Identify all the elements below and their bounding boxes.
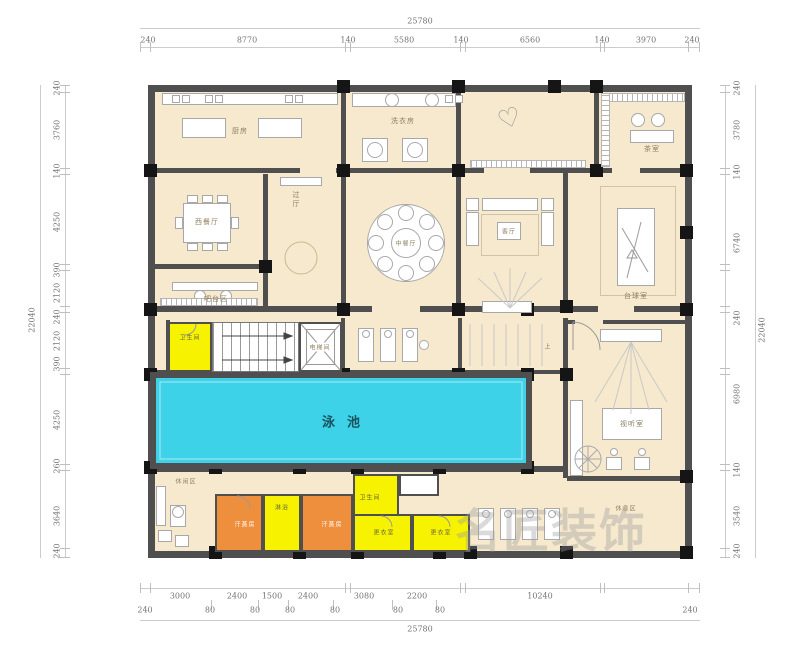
column [259, 260, 272, 273]
room-label-elevator: 电梯间 [308, 343, 331, 352]
furniture [156, 486, 166, 526]
furniture [466, 198, 479, 211]
dimension-tick [720, 557, 730, 558]
furniture [187, 243, 198, 251]
column [680, 303, 693, 316]
column [560, 300, 573, 313]
dimension-line [140, 620, 700, 621]
column [560, 546, 573, 559]
dimension-tick [60, 85, 70, 86]
door-opening [484, 168, 530, 173]
door-opening [598, 306, 634, 312]
dimension-label: 5580 [394, 36, 414, 45]
dimension-label: 2120 [53, 331, 62, 351]
column [680, 164, 693, 177]
dimension-label: 240 [53, 309, 62, 324]
furniture-circle [419, 214, 435, 230]
wall [567, 476, 687, 481]
dimension-label: 240 [137, 606, 152, 615]
dimension-tick [688, 583, 689, 593]
dimension-tick [465, 583, 466, 593]
window-band [601, 93, 685, 102]
furniture [175, 217, 183, 229]
furniture [172, 282, 258, 291]
dimension-tick [60, 264, 70, 265]
dimension-label: 6560 [520, 36, 540, 45]
dimension-tick [60, 168, 70, 169]
cabinet-square [215, 95, 223, 103]
column [548, 80, 561, 93]
dimension-label: 140 [53, 163, 62, 178]
dimension-line [725, 85, 726, 558]
furniture-circle [504, 510, 512, 518]
dimension-label: 25780 [407, 17, 432, 26]
cabinet-square [455, 95, 463, 103]
furniture-circle [377, 256, 393, 272]
dimension-tick [60, 270, 70, 271]
dimension-tick [60, 557, 70, 558]
dimension-tick [460, 583, 461, 593]
dimension-tick [350, 583, 351, 593]
furniture-circle [398, 265, 414, 281]
room-label-laundry: 洗衣房 [391, 116, 415, 126]
furniture-circle [482, 510, 490, 518]
furniture [482, 198, 538, 211]
dimension-label: 140 [340, 36, 355, 45]
furniture-circle [419, 340, 429, 350]
dimension-tick [345, 583, 346, 593]
furniture [217, 243, 228, 251]
column [452, 80, 465, 93]
dimension-label: 6740 [733, 233, 742, 253]
wall [341, 91, 346, 308]
dimension-label: 240 [53, 80, 62, 95]
room-label-sauna-right: 汗蒸房 [321, 520, 342, 529]
room-label-changing-2: 更衣室 [430, 528, 451, 537]
furniture [280, 177, 322, 186]
dimension-line [65, 85, 66, 558]
column [680, 546, 693, 559]
dimension-label: 4250 [53, 212, 62, 232]
room-label-billiards: 台球室 [624, 291, 648, 301]
dimension-label: 10240 [527, 592, 552, 601]
wall [563, 318, 568, 478]
wall [458, 318, 462, 374]
furniture [158, 530, 172, 542]
room-label-tea-room: 茶室 [644, 144, 660, 154]
dimension-label: 1500 [262, 592, 282, 601]
dimension-label: 80 [435, 606, 445, 615]
room-label-wc-left: 卫生间 [179, 333, 200, 342]
cabinet-square [182, 95, 190, 103]
door-opening [372, 306, 420, 312]
furniture [217, 195, 228, 203]
room-label-shower: 淋浴 [275, 503, 289, 512]
column [680, 470, 693, 483]
dimension-label: 3640 [53, 506, 62, 526]
wall [148, 551, 692, 558]
column [337, 303, 350, 316]
sink-nook [399, 474, 439, 496]
dimension-tick [60, 92, 70, 93]
dimension-tick [60, 174, 70, 175]
dimension-label: 240 [733, 80, 742, 95]
furniture-circle [362, 330, 370, 338]
furniture-circle [631, 113, 645, 127]
dimension-label: 4250 [53, 410, 62, 430]
dimension-label: 140 [733, 462, 742, 477]
dimension-line [140, 28, 700, 29]
dimension-label: 390 [53, 356, 62, 371]
cabinet-square [295, 95, 303, 103]
dimension-tick [60, 464, 70, 465]
dimension-tick [60, 306, 70, 307]
wall [594, 91, 599, 170]
door-opening [575, 320, 603, 324]
furniture-circle [398, 205, 414, 221]
furniture-circle [377, 214, 393, 230]
door-opening [612, 168, 640, 173]
stair-up-label: 上 [544, 342, 551, 351]
room-label-sauna-left: 汗蒸房 [234, 520, 255, 529]
dimension-label: 80 [250, 606, 260, 615]
dimension-tick [720, 92, 730, 93]
furniture-circle [384, 330, 392, 338]
room-label-west-dining: 西餐厅 [195, 217, 219, 227]
dimension-tick [720, 464, 730, 465]
dimension-tick [720, 264, 730, 265]
column [144, 303, 157, 316]
dimension-line [40, 85, 41, 558]
furniture-circle [638, 448, 646, 456]
dimension-tick [720, 168, 730, 169]
dimension-label: 6980 [733, 384, 742, 404]
dimension-label: 140 [594, 36, 609, 45]
dimension-tick [600, 583, 601, 593]
furniture [570, 400, 583, 476]
dimension-label: 22040 [28, 307, 37, 332]
dimension-label: 80 [330, 606, 340, 615]
furniture [630, 130, 674, 143]
furniture [466, 212, 479, 246]
dimension-line [140, 47, 700, 48]
dimension-tick [720, 270, 730, 271]
room-label-chinese-dining: 中餐厅 [395, 239, 416, 248]
furniture-circle [419, 256, 435, 272]
dimension-tick [140, 583, 141, 593]
dimension-tick [720, 374, 730, 375]
furniture-circle [407, 142, 423, 158]
dimension-label: 140 [453, 36, 468, 45]
furniture [634, 457, 650, 470]
furniture [541, 212, 554, 246]
column [144, 164, 157, 177]
cabinet-square [445, 95, 453, 103]
room-label-bar-area: 吧台区 [204, 294, 228, 304]
dimension-tick [720, 312, 730, 313]
dimension-tick [60, 312, 70, 313]
wall [263, 174, 268, 308]
room-label-living: 客厅 [502, 227, 516, 236]
furniture [541, 198, 554, 211]
dimension-label: 3000 [170, 592, 190, 601]
column [590, 80, 603, 93]
furniture-circle [526, 510, 534, 518]
cabinet-square [205, 95, 213, 103]
dimension-label: 2120 [53, 283, 62, 303]
column [560, 368, 573, 381]
stair-main [212, 322, 299, 372]
door-opening [300, 168, 336, 173]
furniture [606, 457, 622, 470]
dimension-label: 2200 [407, 592, 427, 601]
dimension-label: 240 [140, 36, 155, 45]
room-wc-left [168, 322, 212, 372]
wall [148, 85, 692, 92]
room-label-lounge: 休闲区 [175, 477, 196, 486]
dimension-label: 3540 [733, 506, 742, 526]
dimension-line [755, 85, 756, 558]
dimension-tick [720, 306, 730, 307]
dimension-tick [720, 174, 730, 175]
window-band [601, 93, 610, 167]
column [680, 226, 693, 239]
dimension-tick [699, 583, 700, 593]
dimension-label: 80 [285, 606, 295, 615]
furniture-circle [428, 235, 444, 251]
room-label-kitchen: 厨房 [232, 126, 248, 136]
dimension-label: 80 [205, 606, 215, 615]
wall [154, 264, 265, 269]
dimension-label: 240 [733, 310, 742, 325]
dimension-label: 240 [682, 606, 697, 615]
dimension-label: 140 [733, 164, 742, 179]
dimension-tick [60, 470, 70, 471]
dimension-label: 2400 [298, 592, 318, 601]
dimension-label: 25780 [407, 625, 432, 634]
furniture-circle [172, 506, 184, 518]
dimension-label: 3080 [354, 592, 374, 601]
dimension-tick [60, 368, 70, 369]
column [337, 164, 350, 177]
furniture-circle [610, 448, 618, 456]
dimension-label: 3970 [636, 36, 656, 45]
dimension-label: 80 [393, 606, 403, 615]
furniture [175, 535, 189, 547]
dimension-label: 3760 [53, 120, 62, 140]
room-label-av-room: 视听室 [620, 419, 644, 429]
dimension-label: 8770 [237, 36, 257, 45]
cabinet-square [285, 95, 293, 103]
wall [563, 170, 568, 308]
wall [148, 85, 155, 558]
furniture [231, 217, 239, 229]
cabinet-square [172, 95, 180, 103]
dimension-tick [720, 368, 730, 369]
floor-plan-canvas: ♡ 厨房 洗衣房 茶室 西餐厅 吧台区 过厅 中餐厅 客厅 台球室 电梯间 卫生… [0, 0, 800, 666]
furniture [352, 93, 456, 107]
dimension-tick [604, 583, 605, 593]
furniture [187, 195, 198, 203]
furniture [600, 329, 662, 342]
rug-outline [600, 186, 676, 296]
furniture-circle [368, 235, 384, 251]
column [452, 303, 465, 316]
wall [456, 91, 461, 308]
furniture-circle [425, 93, 439, 107]
room-label-changing-1: 更衣室 [373, 528, 394, 537]
furniture [182, 118, 226, 138]
dimension-line [140, 588, 700, 589]
dimension-tick [60, 374, 70, 375]
dimension-label: 390 [53, 262, 62, 277]
furniture-circle [367, 142, 383, 158]
room-label-pool: 泳池 [310, 412, 372, 431]
room-label-wc-right: 卫生间 [359, 493, 380, 502]
room-label-hall: 过厅 [291, 191, 301, 209]
dimension-label: 2400 [227, 592, 247, 601]
dimension-tick [720, 548, 730, 549]
room-label-rest-area: 休息区 [615, 504, 636, 513]
furniture-circle [385, 93, 399, 107]
furniture [482, 301, 532, 313]
dimension-label: 240 [53, 543, 62, 558]
furniture-circle [651, 113, 665, 127]
furniture [202, 195, 213, 203]
dimension-label: 240 [684, 36, 699, 45]
furniture [258, 118, 302, 138]
furniture [202, 243, 213, 251]
column [452, 164, 465, 177]
dimension-label: 22040 [758, 317, 767, 342]
dimension-tick [720, 85, 730, 86]
dimension-label: 260 [53, 458, 62, 473]
dimension-tick [150, 583, 151, 593]
column [337, 80, 350, 93]
furniture-circle [406, 330, 414, 338]
dimension-label: 3780 [733, 120, 742, 140]
dimension-tick [60, 548, 70, 549]
furniture-circle [548, 510, 556, 518]
dimension-tick [720, 470, 730, 471]
window-band [470, 160, 586, 168]
dimension-label: 240 [733, 543, 742, 558]
